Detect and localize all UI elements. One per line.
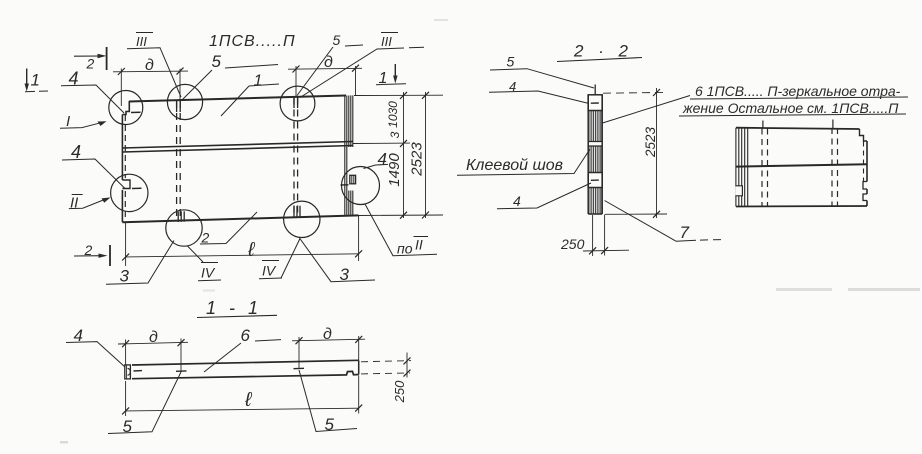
svg-text:6: 6: [241, 326, 251, 345]
svg-text:1030: 1030: [386, 101, 400, 128]
svg-text:2: 2: [86, 56, 95, 72]
svg-text:I: I: [66, 113, 70, 130]
svg-text:д: д: [323, 326, 332, 343]
svg-text:2523: 2523: [409, 142, 426, 177]
svg-text:1ПСВ.....П: 1ПСВ.....П: [209, 33, 296, 50]
svg-text:7: 7: [680, 223, 690, 242]
svg-text:IV: IV: [201, 265, 216, 281]
svg-text:д: д: [145, 57, 154, 74]
svg-text:2 · 2: 2 · 2: [573, 42, 633, 61]
svg-text:IV: IV: [262, 263, 277, 279]
svg-text:4: 4: [513, 193, 521, 209]
svg-text:жение Остальное см. 1ПСВ.....П: жение Остальное см. 1ПСВ.....П: [682, 100, 899, 116]
svg-text:III: III: [136, 34, 147, 49]
svg-text:5: 5: [212, 52, 222, 71]
svg-text:6 1ПСВ..... П-зеркальное отра: 6 1ПСВ..... П-зеркальное отра-: [695, 83, 901, 99]
svg-text:4: 4: [378, 150, 387, 169]
svg-text:250: 250: [392, 380, 407, 403]
svg-text:1: 1: [31, 71, 40, 90]
svg-text:Клеевой шов: Клеевой шов: [466, 157, 563, 174]
svg-text:1490: 1490: [386, 153, 403, 187]
svg-text:III: III: [381, 34, 392, 49]
svg-text:5: 5: [333, 32, 341, 48]
svg-text:1: 1: [254, 73, 263, 90]
svg-text:3: 3: [388, 131, 402, 138]
svg-text:по: по: [397, 241, 413, 257]
svg-text:II: II: [415, 237, 423, 253]
svg-text:3: 3: [120, 267, 130, 286]
svg-text:1 - 1: 1 - 1: [206, 298, 262, 318]
svg-text:250: 250: [560, 236, 585, 252]
svg-text:2523: 2523: [643, 126, 658, 158]
svg-text:5: 5: [507, 54, 515, 70]
svg-text:д: д: [149, 329, 158, 346]
svg-text:2: 2: [201, 230, 210, 246]
